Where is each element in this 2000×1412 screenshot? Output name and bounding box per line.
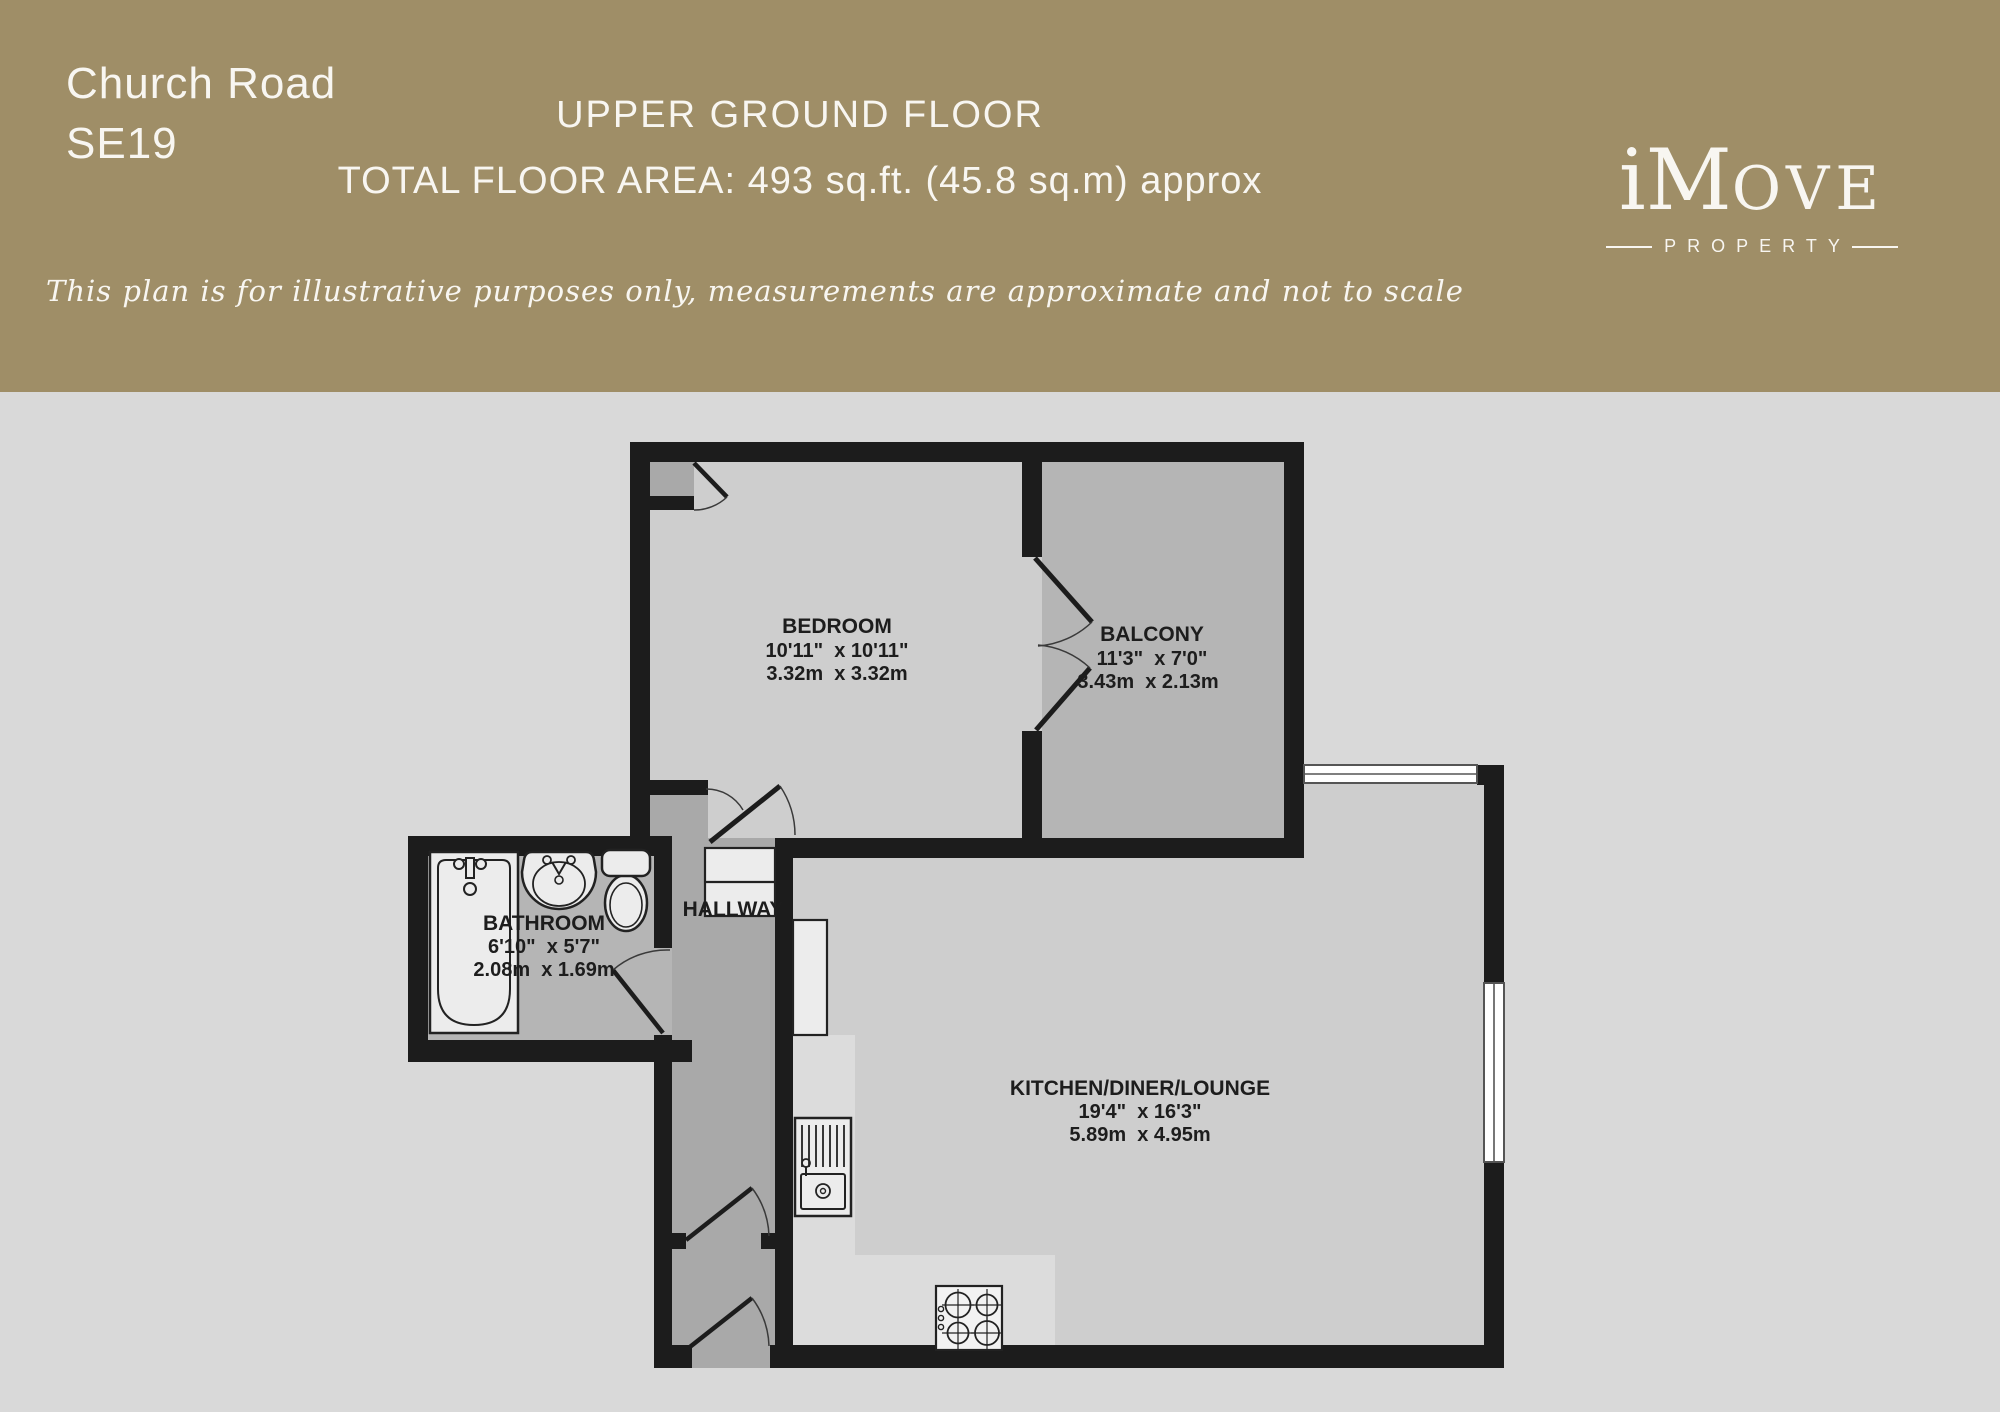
bedroom-cupboard-floor (650, 462, 694, 496)
total-floor-area: TOTAL FLOOR AREA: 493 sq.ft. (45.8 sq.m)… (338, 160, 1263, 204)
wall-bottom-main (770, 1345, 1504, 1368)
hob-icon (936, 1286, 1002, 1350)
logo-i: i (1619, 131, 1646, 229)
hallway-label: HALLWAY (683, 898, 784, 921)
bathroom-dims-metric: 2.08m x 1.69m (473, 959, 614, 981)
balcony-label: BALCONY (1100, 623, 1204, 646)
tagline-rule-left (1606, 246, 1652, 248)
floor-summary: UPPER GROUND FLOOR TOTAL FLOOR AREA: 493… (338, 94, 1263, 203)
bedroom-dims-metric: 3.32m x 3.32m (766, 663, 907, 685)
logo-m: M (1646, 131, 1732, 229)
wall-bathroom-left (408, 836, 428, 1062)
wall-middoor-jamb-right (761, 1233, 775, 1249)
wall-ne-corner (1477, 765, 1504, 785)
kitchen-tall-cupboard (793, 920, 827, 1035)
floor-title: UPPER GROUND FLOOR (338, 94, 1263, 138)
window-icon (1304, 765, 1477, 783)
tagline-text: PROPERTY (1664, 236, 1851, 257)
address-line1: Church Road (66, 54, 336, 114)
address-line2: SE19 (66, 114, 336, 174)
kitchen-dims-imperial: 19'4" x 16'3" (1078, 1101, 1201, 1123)
balcony-dims-metric: 3.43m x 2.13m (1077, 671, 1218, 693)
bathroom-label: BATHROOM (483, 912, 605, 935)
kitchen-dims-metric: 5.89m x 4.95m (1069, 1124, 1210, 1146)
bathroom-dims-imperial: 6'10" x 5'7" (488, 936, 600, 958)
kitchen-sink-icon (795, 1118, 851, 1216)
toilet-icon (602, 850, 650, 931)
kitchen-label: KITCHEN/DINER/LOUNGE (1010, 1077, 1270, 1100)
balcony-doorway-sill (1022, 557, 1042, 731)
wall-right-upper (1484, 783, 1504, 983)
header-band: Church Road SE19 UPPER GROUND FLOOR TOTA… (0, 0, 2000, 392)
wall-bathroom-bottom (408, 1040, 692, 1062)
window-icon (1484, 983, 1504, 1162)
wall-top (630, 442, 1304, 462)
tagline-rule-right (1852, 246, 1898, 248)
bedroom-label: BEDROOM (782, 615, 892, 638)
disclaimer-text: This plan is for illustrative purposes o… (46, 274, 1464, 308)
floorplan: BEDROOM 10'11" x 10'11" 3.32m x 3.32m BA… (0, 392, 2000, 1412)
property-address: Church Road SE19 (66, 54, 336, 174)
wall-bedroom-balcony-upper (1022, 442, 1042, 557)
wall-bedroom-bottom-stub (650, 780, 708, 795)
imove-logo: iMOVE PROPERTY (1602, 138, 1902, 257)
kitchen-counter-bottom (793, 1255, 1055, 1345)
wall-middoor-jamb-left (672, 1233, 686, 1249)
hallway-strip (708, 838, 775, 848)
wall-balcony-right (1284, 442, 1304, 858)
logo-ove: OVE (1732, 154, 1885, 224)
imove-wordmark: iMOVE (1602, 138, 1902, 222)
entrance-doorway-sill (692, 1345, 770, 1368)
wall-hall-left-lower (654, 1035, 672, 1345)
wall-hall-left-upper (654, 856, 672, 948)
wall-kitchen-top (775, 838, 1304, 858)
logo-tagline: PROPERTY (1602, 236, 1902, 257)
balcony-dims-imperial: 11'3" x 7'0" (1097, 648, 1208, 670)
wall-right-lower (1484, 1162, 1504, 1368)
kitchen-floor-nook (1304, 783, 1484, 863)
bedroom-floor-notch (708, 782, 1022, 840)
bedroom-dims-imperial: 10'11" x 10'11" (765, 640, 908, 662)
wall-cupboard-stub (630, 496, 694, 510)
